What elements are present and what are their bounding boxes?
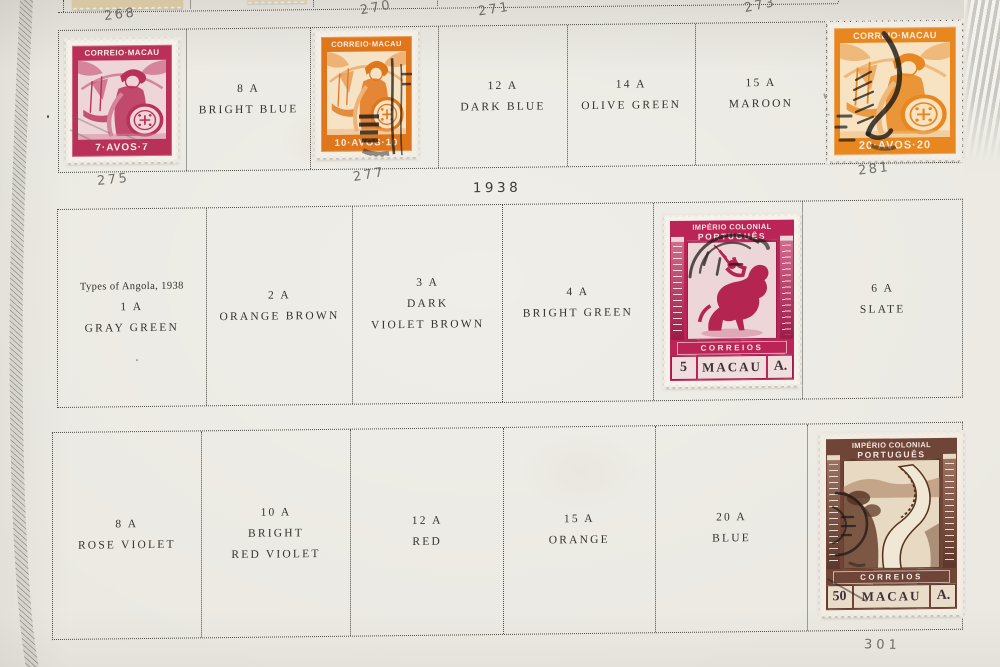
stamp-country: MACAU [854, 584, 929, 609]
album-page-photo: 268 270 271 273 275 277 281 301 1938 8 A… [0, 0, 1000, 667]
partial-stamp-remnant [247, 0, 307, 4]
color-label: OLIVE GREEN [581, 94, 681, 116]
stamp-country: MACAU [698, 355, 766, 380]
denomination-label: 12 A [412, 511, 443, 532]
stamp-value-text: 20·AVOS·20 [834, 137, 956, 155]
grid-cell-label: 8 A ROSE VIOLET [53, 431, 201, 639]
stamp-column-left [827, 460, 840, 569]
stamp-design: CORREIO·MACAU 7·AVOS·7 [72, 45, 172, 157]
dust-speck [47, 115, 49, 118]
denomination-label: 8 A [115, 514, 138, 535]
previous-row-border-stub [190, 0, 191, 9]
color-label: DARK [407, 294, 448, 315]
stamp-country-text: CORREIO·MACAU [72, 45, 172, 61]
color-label: DARK BLUE [460, 96, 545, 118]
stamp-correios-band: CORREIOS [833, 570, 950, 584]
stamp-row-2: Types of Angola, 1938 1 A GRAY GREEN 2 A… [57, 199, 963, 408]
stamp-design: IMPÉRIO COLONIAL PORTUGUÊS FOMENTO CORRE… [826, 438, 957, 610]
stamp-value-text: 10·AVOS·10 [321, 134, 412, 152]
grid-cell-label: 15 A MAROON [695, 22, 827, 164]
stamp-column-right [780, 241, 793, 339]
stamp-10-avos-orange: CORREIO·MACAU 10·AVOS·10 [315, 30, 418, 158]
stamp-design: CORREIO·MACAU 20·AVOS·20 [834, 27, 956, 155]
stamp-column-left [671, 242, 684, 340]
grid-cell-label: 20 A BLUE [655, 424, 808, 632]
stamp-design: IMPÉRIO COLONIAL PORTUGUÊS CORREIOS 5 MA… [670, 220, 794, 381]
denomination-label: 12 A [488, 75, 519, 96]
stamp-design: CORREIO·MACAU 10·AVOS·10 [321, 36, 412, 152]
denomination-label: 14 A [616, 74, 647, 95]
denomination-label: 20 A [716, 507, 747, 528]
denomination-label: 15 A [746, 72, 777, 93]
denomination-label: 2 A [268, 285, 291, 306]
dust-speck [136, 359, 138, 361]
denomination-label: 15 A [564, 509, 595, 530]
color-label: GRAY GREEN [85, 318, 179, 340]
grid-cell-label: 2 A ORANGE BROWN [206, 207, 353, 406]
denomination-label: 10 A [261, 502, 292, 523]
color-label: ORANGE BROWN [220, 305, 340, 327]
color-label: RED [412, 532, 442, 553]
stamp-20-avos-orange: CORREIO·MACAU 20·AVOS·20 [828, 21, 962, 162]
stamp-correios-band: CORREIOS [677, 341, 787, 355]
color-label: SLATE [860, 299, 906, 321]
pencil-number: 268 [103, 5, 137, 24]
denomination-label: 6 A [871, 278, 894, 299]
grid-cell-label: Types of Angola, 1938 1 A GRAY GREEN [58, 208, 206, 407]
stamp-value: 5 [671, 356, 698, 380]
color-label: BRIGHT GREEN [523, 302, 633, 324]
series-note: Types of Angola, 1938 [80, 276, 184, 298]
grid-cell-label: 3 A DARK VIOLET BROWN [352, 205, 502, 404]
color-label: ORANGE [549, 530, 610, 552]
color-label: BLUE [712, 528, 751, 549]
previous-row-border-stub [838, 0, 839, 2]
grid-cell-label: 15 A ORANGE [503, 426, 655, 634]
stamp-5a-imperio-colonial: IMPÉRIO COLONIAL PORTUGUÊS CORREIOS 5 MA… [664, 214, 800, 388]
denomination-label: 1 A [120, 297, 143, 318]
previous-row-border-stub [313, 0, 314, 7]
stamp-vignette [78, 60, 166, 140]
stamp-value-text: 7·AVOS·7 [72, 139, 172, 157]
stamp-vignette [327, 51, 406, 135]
grid-cell-label: 10 A BRIGHT RED VIOLET [201, 430, 351, 638]
stamp-7-avos-rose: CORREIO·MACAU 7·AVOS·7 [66, 39, 178, 163]
pencil-number: 271 [477, 0, 511, 19]
grid-cell-label: 14 A OLIVE GREEN [567, 24, 695, 166]
grid-cell-label: 6 A SLATE [802, 200, 962, 399]
stamp-column-right [943, 459, 956, 568]
stamp-vignette-road [843, 459, 940, 569]
stamp-value-row: 50 MACAU A. [827, 584, 956, 609]
stamp-country-text: CORREIO·MACAU [321, 36, 412, 52]
stamp-vignette [840, 42, 950, 138]
color-label: ROSE VIOLET [78, 535, 176, 557]
denomination-label: 4 A [566, 281, 589, 302]
denomination-label: 8 A [237, 78, 260, 99]
stamp-value-row: 5 MACAU A. [671, 355, 793, 380]
grid-cell-label: 4 A BRIGHT GREEN [502, 203, 653, 402]
color-label: MAROON [729, 93, 793, 115]
previous-row-border-stub [63, 0, 64, 12]
color-label: RED VIOLET [231, 544, 320, 566]
color-label: BRIGHT [248, 523, 304, 545]
color-label: BRIGHT BLUE [199, 99, 299, 121]
album-grid: 268 270 271 273 275 277 281 301 1938 8 A… [0, 0, 1000, 667]
previous-row-border-stub [437, 0, 438, 6]
grid-cell-label: 8 A BRIGHT BLUE [186, 28, 311, 170]
denomination-label: 3 A [416, 273, 439, 294]
color-label: VIOLET BROWN [371, 314, 484, 336]
stamp-value: 50 [827, 585, 854, 609]
stamp-country-text: CORREIO·MACAU [834, 27, 956, 43]
pencil-number: 275 [96, 171, 130, 189]
pencil-number: 273 [743, 0, 778, 16]
grid-cell-label: 12 A DARK BLUE [438, 25, 567, 167]
stamp-vignette-horseman [687, 241, 777, 340]
stamp-50a-imperio-colonial: IMPÉRIO COLONIAL PORTUGUÊS FOMENTO CORRE… [820, 432, 963, 617]
section-year-heading: 1938 [437, 179, 557, 196]
pencil-number: 270 [359, 0, 393, 18]
grid-cell-label: 12 A RED [350, 428, 503, 636]
stamp-currency: A. [929, 584, 956, 608]
stamp-currency: A. [766, 355, 793, 379]
pencil-number: 301 [864, 637, 901, 653]
